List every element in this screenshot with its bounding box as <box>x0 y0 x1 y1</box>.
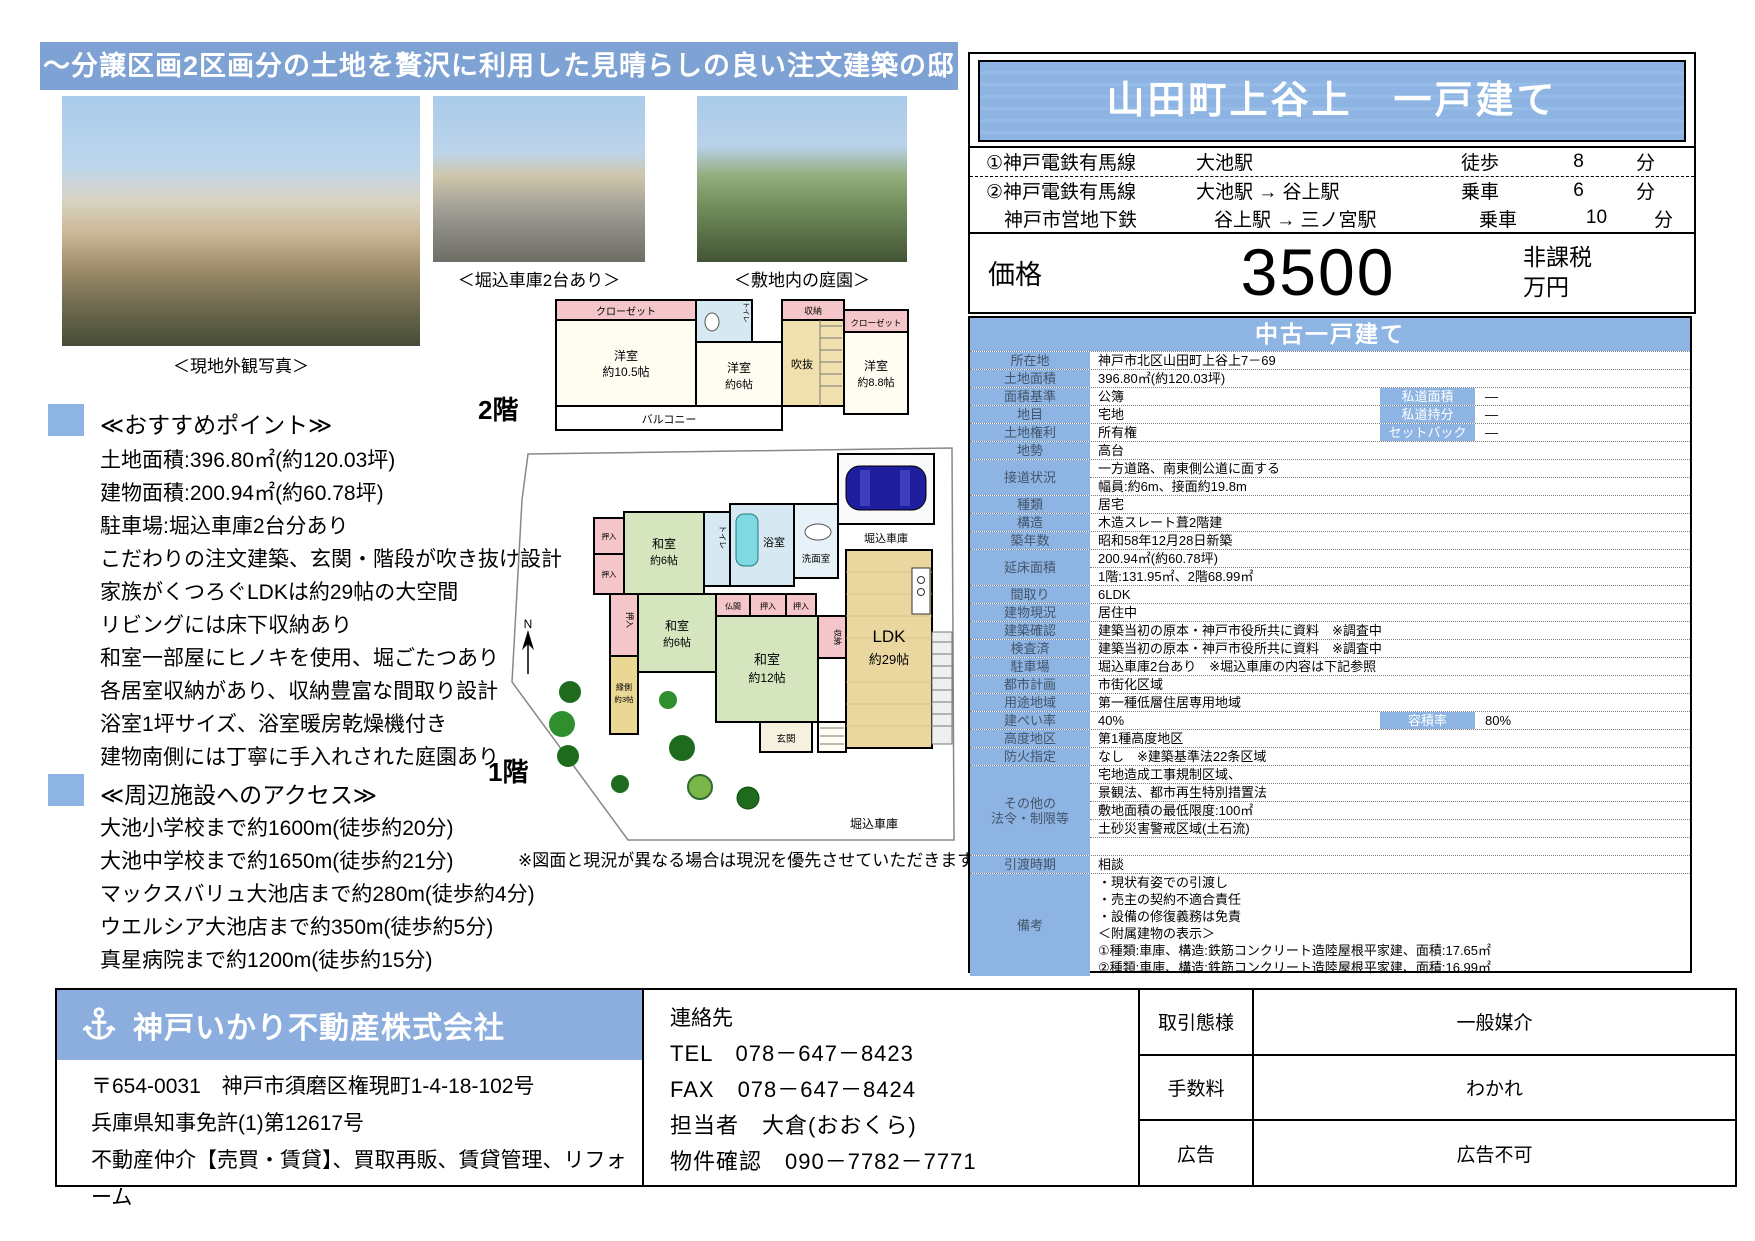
sub-label: 私道面積 <box>1380 388 1475 405</box>
room-label: 和室 <box>754 652 780 667</box>
table-row: 用途地域 第一種低層住居専用地域 <box>970 693 1690 711</box>
deal-value: わかれ <box>1254 1056 1735 1120</box>
flyer-page: ～分譲区画2区画分の土地を贅沢に利用した見晴らしの良い注文建築の邸宅～ ＜現地外… <box>0 0 1755 1241</box>
table-row: 建築確認 建築当初の原本・神戸市役所共に資料 ※調査中 <box>970 621 1690 639</box>
deal-label: 広告 <box>1140 1121 1254 1185</box>
deal-value: 一般媒介 <box>1254 990 1735 1054</box>
room-size-label: 約6帖 <box>663 635 691 649</box>
room-label: 洋室 <box>614 348 638 363</box>
room-label: 和室 <box>665 618 689 633</box>
row-value: ・売主の契約不適合責任 <box>1090 891 1690 908</box>
toilet-label: トイレ <box>742 302 749 323</box>
room-label: 和室 <box>652 536 676 551</box>
table-row: 面積基準 公簿 私道面積 ― <box>970 387 1690 405</box>
kitchen-icon <box>912 568 930 614</box>
garage-label: 堀込車庫 <box>850 816 898 831</box>
table-row: 構造 木造スレート葺2階建 <box>970 513 1690 531</box>
sub-label: 容積率 <box>1380 712 1475 729</box>
genkan-label: 玄関 <box>776 733 795 745</box>
nearby-item: 真星病院まで約1200m(徒歩約15分) <box>100 944 570 977</box>
table-row: 建物現況 居住中 <box>970 603 1690 621</box>
recommend-list: 土地面積:396.80㎡(約120.03坪) 建物面積:200.94㎡(約60.… <box>100 444 570 774</box>
row-value: 第一種低層住居専用地域 <box>1090 694 1690 711</box>
table-row: 都市計画 市街化区域 <box>970 675 1690 693</box>
deal-value: 広告不可 <box>1254 1121 1735 1185</box>
table-row: 地勢 高台 <box>970 441 1690 459</box>
row-label: 駐車場 <box>970 658 1090 675</box>
train-unit: 分 <box>1606 177 1694 204</box>
deal-table: 取引態様 一般媒介 手数料 わかれ 広告 広告不可 <box>1138 990 1735 1185</box>
row-value: 公簿 <box>1090 388 1380 405</box>
row-value: 40% <box>1090 712 1380 729</box>
garage-photo-caption: ＜堀込車庫2台あり＞ <box>433 266 645 291</box>
property-header-box: 山田町上谷上 一戸建て ①神戸電鉄有馬線 大池駅 徒歩 8 分 ②神戸電鉄有馬線… <box>968 52 1696 314</box>
exterior-photo-caption: ＜現地外観写真＞ <box>62 352 420 377</box>
property-title: 山田町上谷上 一戸建て <box>978 60 1686 142</box>
row-value: ①種類:車庫、構造:鉄筋コンクリート造陸屋根平家建、面積:17.65㎡ <box>1090 942 1690 959</box>
blank-line <box>1090 837 1690 855</box>
row-value: 建築当初の原本・神戸市役所共に資料 ※調査中 <box>1090 640 1690 657</box>
row-value: 幅員:約6m、接面約19.8m <box>1090 477 1690 495</box>
svg-text:N: N <box>524 617 533 631</box>
exterior-photo <box>62 96 420 346</box>
recommend-item: 各居室収納があり、収納豊富な間取り設計 <box>100 675 570 708</box>
train-minutes: 6 <box>1551 180 1606 202</box>
row-label: 所在地 <box>970 352 1090 369</box>
table-row: 築年数 昭和58年12月28日新築 <box>970 531 1690 549</box>
row-value: 居宅 <box>1090 496 1690 513</box>
table-row: 延床面積 200.94㎡(約60.78坪) 1階:131.95㎡、2階68.99… <box>970 549 1690 585</box>
price-value: 3500 <box>1153 234 1483 310</box>
floor2-label: 2階 <box>478 390 518 427</box>
table-row: 種類 居宅 <box>970 495 1690 513</box>
row-value: 神戸市北区山田町上谷上7－69 <box>1090 352 1690 369</box>
nearby-heading: ≪周辺施設へのアクセス≫ <box>100 776 377 810</box>
closet-label: クローゼット <box>850 318 901 328</box>
table-row: 接道状況 一方道路、南東側公道に面する 幅員:約6m、接面約19.8m <box>970 459 1690 495</box>
train-minutes: 8 <box>1551 151 1606 173</box>
category-header: 中古一戸建て <box>970 318 1690 351</box>
row-label: 種類 <box>970 496 1090 513</box>
train-route: 谷上駅 → 三ノ宮駅 <box>1214 205 1479 232</box>
contact-confirm: 物件確認 090－7782－7771 <box>670 1144 1138 1180</box>
recommend-item: 家族がくつろぐLDKは約29帖の大空間 <box>100 576 570 609</box>
table-row: 間取り 6LDK <box>970 585 1690 603</box>
void-label: 吹抜 <box>791 357 813 371</box>
row-label: 土地権利 <box>970 424 1090 441</box>
footer-section: 神戸いかり不動産株式会社 〒654-0031 神戸市須磨区権現町1-4-18-1… <box>55 988 1737 1187</box>
price-unit: 万円 <box>1523 272 1592 302</box>
table-row: その他の 法令・制限等 宅地造成工事規制区域、 景観法、都市再生特別措置法 敷地… <box>970 765 1690 855</box>
train-route: 大池駅 <box>1196 148 1461 175</box>
train-route: 大池駅 → 谷上駅 <box>1196 177 1461 204</box>
garage-photo <box>433 96 645 262</box>
train-minutes: 10 <box>1569 207 1624 229</box>
toilet-label: トイレ <box>718 525 727 549</box>
contact-person: 担当者 大倉(おおくら) <box>670 1108 1138 1144</box>
oshiire-label: 押入 <box>602 531 617 541</box>
table-row: 地目 宅地 私道持分 ― <box>970 405 1690 423</box>
table-row: 土地権利 所有権 セットバック ― <box>970 423 1690 441</box>
row-label: 面積基準 <box>970 388 1090 405</box>
row-label: 地目 <box>970 406 1090 423</box>
recommend-item: 建物面積:200.94㎡(約60.78坪) <box>100 477 570 510</box>
recommend-item: 浴室1坪サイズ、浴室暖房乾燥機付き <box>100 708 570 741</box>
room-size-label: 約8.8帖 <box>857 375 894 389</box>
contact-tel: TEL 078－647－8423 <box>670 1036 1138 1072</box>
table-row: 防火指定 なし ※建築基準法22条区域 <box>970 747 1690 765</box>
row-value: ・現状有姿での引渡し <box>1090 874 1690 891</box>
row-label: 接道状況 <box>970 460 1090 495</box>
nearby-item: マックスバリュ大池店まで約280m(徒歩約4分) <box>100 878 570 911</box>
row-label: 間取り <box>970 586 1090 603</box>
deal-row: 広告 広告不可 <box>1140 1119 1735 1185</box>
bullet-square-icon <box>48 774 84 806</box>
bath-label: 浴室 <box>763 535 785 549</box>
room-size-label: 約6帖 <box>650 553 678 567</box>
car-icon <box>846 466 926 510</box>
oshiire-label: 押入 <box>625 612 635 628</box>
price-tax-unit: 非課税 万円 <box>1483 242 1592 302</box>
row-value: 1階:131.95㎡、2階68.99㎡ <box>1090 567 1690 585</box>
company-services: 不動産仲介【売買・賃貸】、買取再販、賃貸管理、リフォーム <box>91 1142 642 1216</box>
row-value: 宅地造成工事規制区域、 <box>1090 766 1690 783</box>
train-unit: 分 <box>1606 148 1694 175</box>
row-value: 6LDK <box>1090 586 1690 603</box>
table-row: 高度地区 第1種高度地区 <box>970 729 1690 747</box>
row-label: 建築確認 <box>970 622 1090 639</box>
nearby-item: 大池中学校まで約1650m(徒歩約21分) <box>100 845 570 878</box>
row-label: 構造 <box>970 514 1090 531</box>
plan-disclaimer: ※図面と現況が異なる場合は現況を優先させていただきます。 <box>518 846 990 871</box>
row-value: 相談 <box>1090 856 1690 873</box>
toilet-icon <box>705 313 719 331</box>
storage-label: 収納 <box>833 629 843 645</box>
contact-fax: FAX 078－647－8424 <box>670 1072 1138 1108</box>
row-label: 建ぺい率 <box>970 712 1090 729</box>
row-value: 200.94㎡(約60.78坪) <box>1090 550 1690 567</box>
room-label: 洋室 <box>864 358 888 373</box>
room-label: 洋室 <box>727 360 751 375</box>
room-size-label: 約10.5帖 <box>602 364 649 379</box>
deal-row: 取引態様 一般媒介 <box>1140 990 1735 1054</box>
deal-label: 手数料 <box>1140 1056 1254 1120</box>
garden-photo <box>697 96 907 262</box>
row-label: 築年数 <box>970 532 1090 549</box>
train-access-row: 神戸市営地下鉄 谷上駅 → 三ノ宮駅 乗車 10 分 <box>970 204 1694 232</box>
row-label: 検査済 <box>970 640 1090 657</box>
company-header: 神戸いかり不動産株式会社 <box>57 990 642 1060</box>
oshiire-label: 押入 <box>793 601 809 611</box>
company-name: 神戸いかり不動産株式会社 <box>133 1003 505 1047</box>
row-value: 一方道路、南東側公道に面する <box>1090 460 1690 477</box>
train-mode: 徒歩 <box>1461 148 1551 175</box>
row-label: 建物現況 <box>970 604 1090 621</box>
row-label: 地勢 <box>970 442 1090 459</box>
contact-box: 連絡先 TEL 078－647－8423 FAX 078－647－8424 担当… <box>642 990 1138 1185</box>
recommend-item: リビングには床下収納あり <box>100 609 570 642</box>
sink-icon <box>805 524 831 540</box>
train-line: ②神戸電鉄有馬線 <box>970 177 1196 204</box>
nearby-list: 大池小学校まで約1600m(徒歩約20分) 大池中学校まで約1650m(徒歩約2… <box>100 812 570 977</box>
floorplan-1f: N 押入 押入 和室 約6帖 トイレ 浴室 洗面室 押入 和室 約6帖 縁側 約… <box>508 442 960 846</box>
recommend-heading: ≪おすすめポイント≫ <box>100 406 332 440</box>
garden-photo-caption: ＜敷地内の庭園＞ <box>697 266 907 291</box>
train-mode: 乗車 <box>1461 177 1551 204</box>
balcony-label: バルコニー <box>642 413 697 426</box>
company-info: 〒654-0031 神戸市須磨区権現町1-4-18-102号 兵庫県知事免許(1… <box>57 1060 642 1216</box>
row-label: 防火指定 <box>970 748 1090 765</box>
property-detail-table: 中古一戸建て 所在地 神戸市北区山田町上谷上7－69 土地面積 396.80㎡(… <box>968 316 1692 973</box>
sub-label: セットバック <box>1380 424 1475 441</box>
contact-heading: 連絡先 <box>670 1002 1138 1036</box>
row-value: 396.80㎡(約120.03坪) <box>1090 370 1690 387</box>
washroom-label: 洗面室 <box>802 553 831 565</box>
row-value: 第1種高度地区 <box>1090 730 1690 747</box>
bathtub-icon <box>736 514 758 566</box>
row-value: 敷地面積の最低限度:100㎡ <box>1090 801 1690 819</box>
row-label: 延床面積 <box>970 550 1090 585</box>
price-tax: 非課税 <box>1523 242 1592 272</box>
price-label: 価格 <box>970 253 1153 292</box>
row-label: 備考 <box>970 874 1090 976</box>
oshiire-label: 押入 <box>602 569 617 579</box>
row-value: 居住中 <box>1090 604 1690 621</box>
recommend-item: 駐車場:堀込車庫2台分あり <box>100 510 570 543</box>
recommend-item: こだわりの注文建築、玄関・階段が吹き抜け設計 <box>100 543 570 576</box>
room-size-label: 約6帖 <box>725 377 753 391</box>
room-size-label: 約12帖 <box>748 670 785 685</box>
nearby-item: ウエルシア大池店まで約350m(徒歩約5分) <box>100 911 570 944</box>
row-value: 昭和58年12月28日新築 <box>1090 532 1690 549</box>
table-row: 駐車場 堀込車庫2台あり ※堀込車庫の内容は下記参照 <box>970 657 1690 675</box>
ldk-size-label: 約29帖 <box>869 652 909 667</box>
sub-value: 80% <box>1475 712 1690 729</box>
row-value: 宅地 <box>1090 406 1380 423</box>
row-value: 木造スレート葺2階建 <box>1090 514 1690 531</box>
row-value: 堀込車庫2台あり ※堀込車庫の内容は下記参照 <box>1090 658 1690 675</box>
table-row: 備考 ・現状有姿での引渡し ・売主の契約不適合責任 ・設備の修復義務は免責 ＜附… <box>970 873 1690 976</box>
row-value: 高台 <box>1090 442 1690 459</box>
table-row: 建ぺい率 40% 容積率 80% <box>970 711 1690 729</box>
garage-label: 堀込車庫 <box>864 531 908 545</box>
deal-row: 手数料 わかれ <box>1140 1054 1735 1120</box>
price-row: 価格 3500 非課税 万円 <box>970 236 1694 308</box>
row-value: ・設備の修復義務は免責 <box>1090 908 1690 925</box>
sub-value: ― <box>1475 424 1690 441</box>
row-value: 所有権 <box>1090 424 1380 441</box>
company-box: 神戸いかり不動産株式会社 〒654-0031 神戸市須磨区権現町1-4-18-1… <box>57 990 642 1185</box>
row-value: 景観法、都市再生特別措置法 <box>1090 783 1690 801</box>
train-access-table: ①神戸電鉄有馬線 大池駅 徒歩 8 分 ②神戸電鉄有馬線 大池駅 → 谷上駅 乗… <box>970 146 1694 234</box>
row-label: 土地面積 <box>970 370 1090 387</box>
row-label: 用途地域 <box>970 694 1090 711</box>
sub-label: 私道持分 <box>1380 406 1475 423</box>
recommend-item: 土地面積:396.80㎡(約120.03坪) <box>100 444 570 477</box>
oshiire-label: 押入 <box>760 601 776 611</box>
company-address: 〒654-0031 神戸市須磨区権現町1-4-18-102号 <box>91 1068 642 1105</box>
row-value: 市街化区域 <box>1090 676 1690 693</box>
page-title-banner: ～分譲区画2区画分の土地を贅沢に利用した見晴らしの良い注文建築の邸宅～ <box>40 42 958 90</box>
table-row: 引渡時期 相談 <box>970 855 1690 873</box>
closet-label: クローゼット <box>596 306 656 318</box>
row-value: 建築当初の原本・神戸市役所共に資料 ※調査中 <box>1090 622 1690 639</box>
floorplan-2f: クローゼット 洋室 約10.5帖 トイレ 洋室 約6帖 吹抜 収納 クローゼット… <box>542 296 914 436</box>
engawa-size-label: 約3帖 <box>614 694 634 704</box>
train-access-row: ①神戸電鉄有馬線 大池駅 徒歩 8 分 <box>970 148 1694 177</box>
deal-label: 取引態様 <box>1140 990 1254 1054</box>
recommend-item: 和室一部屋にヒノキを使用、堀ごたつあり <box>100 642 570 675</box>
engawa-label: 縁側 <box>616 682 632 692</box>
butsuma-label: 仏間 <box>725 602 741 611</box>
compass-icon: N <box>522 617 534 674</box>
row-value: ＜附属建物の表示＞ <box>1090 925 1690 942</box>
row-value: なし ※建築基準法22条区域 <box>1090 748 1690 765</box>
row-value: ②種類:車庫、構造:鉄筋コンクリート造陸屋根平家建、面積:16.99㎡ <box>1090 959 1690 976</box>
row-label: 都市計画 <box>970 676 1090 693</box>
table-row: 土地面積 396.80㎡(約120.03坪) <box>970 369 1690 387</box>
table-row: 所在地 神戸市北区山田町上谷上7－69 <box>970 351 1690 369</box>
row-label: 引渡時期 <box>970 856 1090 873</box>
train-mode: 乗車 <box>1479 205 1569 232</box>
anchor-icon <box>79 1005 119 1045</box>
row-label: その他の 法令・制限等 <box>970 766 1090 855</box>
storage-label: 収納 <box>804 305 822 316</box>
bullet-square-icon <box>48 404 84 436</box>
row-label: 高度地区 <box>970 730 1090 747</box>
train-access-row: ②神戸電鉄有馬線 大池駅 → 谷上駅 乗車 6 分 <box>970 177 1694 205</box>
table-row: 検査済 建築当初の原本・神戸市役所共に資料 ※調査中 <box>970 639 1690 657</box>
train-line: ①神戸電鉄有馬線 <box>970 148 1196 175</box>
row-value: 土砂災害警戒区域(土石流) <box>1090 819 1690 837</box>
outside-stairs <box>932 632 952 744</box>
sub-value: ― <box>1475 388 1690 405</box>
company-license: 兵庫県知事免許(1)第12617号 <box>91 1105 642 1142</box>
sub-value: ― <box>1475 406 1690 423</box>
train-unit: 分 <box>1624 205 1694 232</box>
ldk-label: LDK <box>872 627 906 646</box>
train-line: 神戸市営地下鉄 <box>970 205 1214 232</box>
nearby-item: 大池小学校まで約1600m(徒歩約20分) <box>100 812 570 845</box>
